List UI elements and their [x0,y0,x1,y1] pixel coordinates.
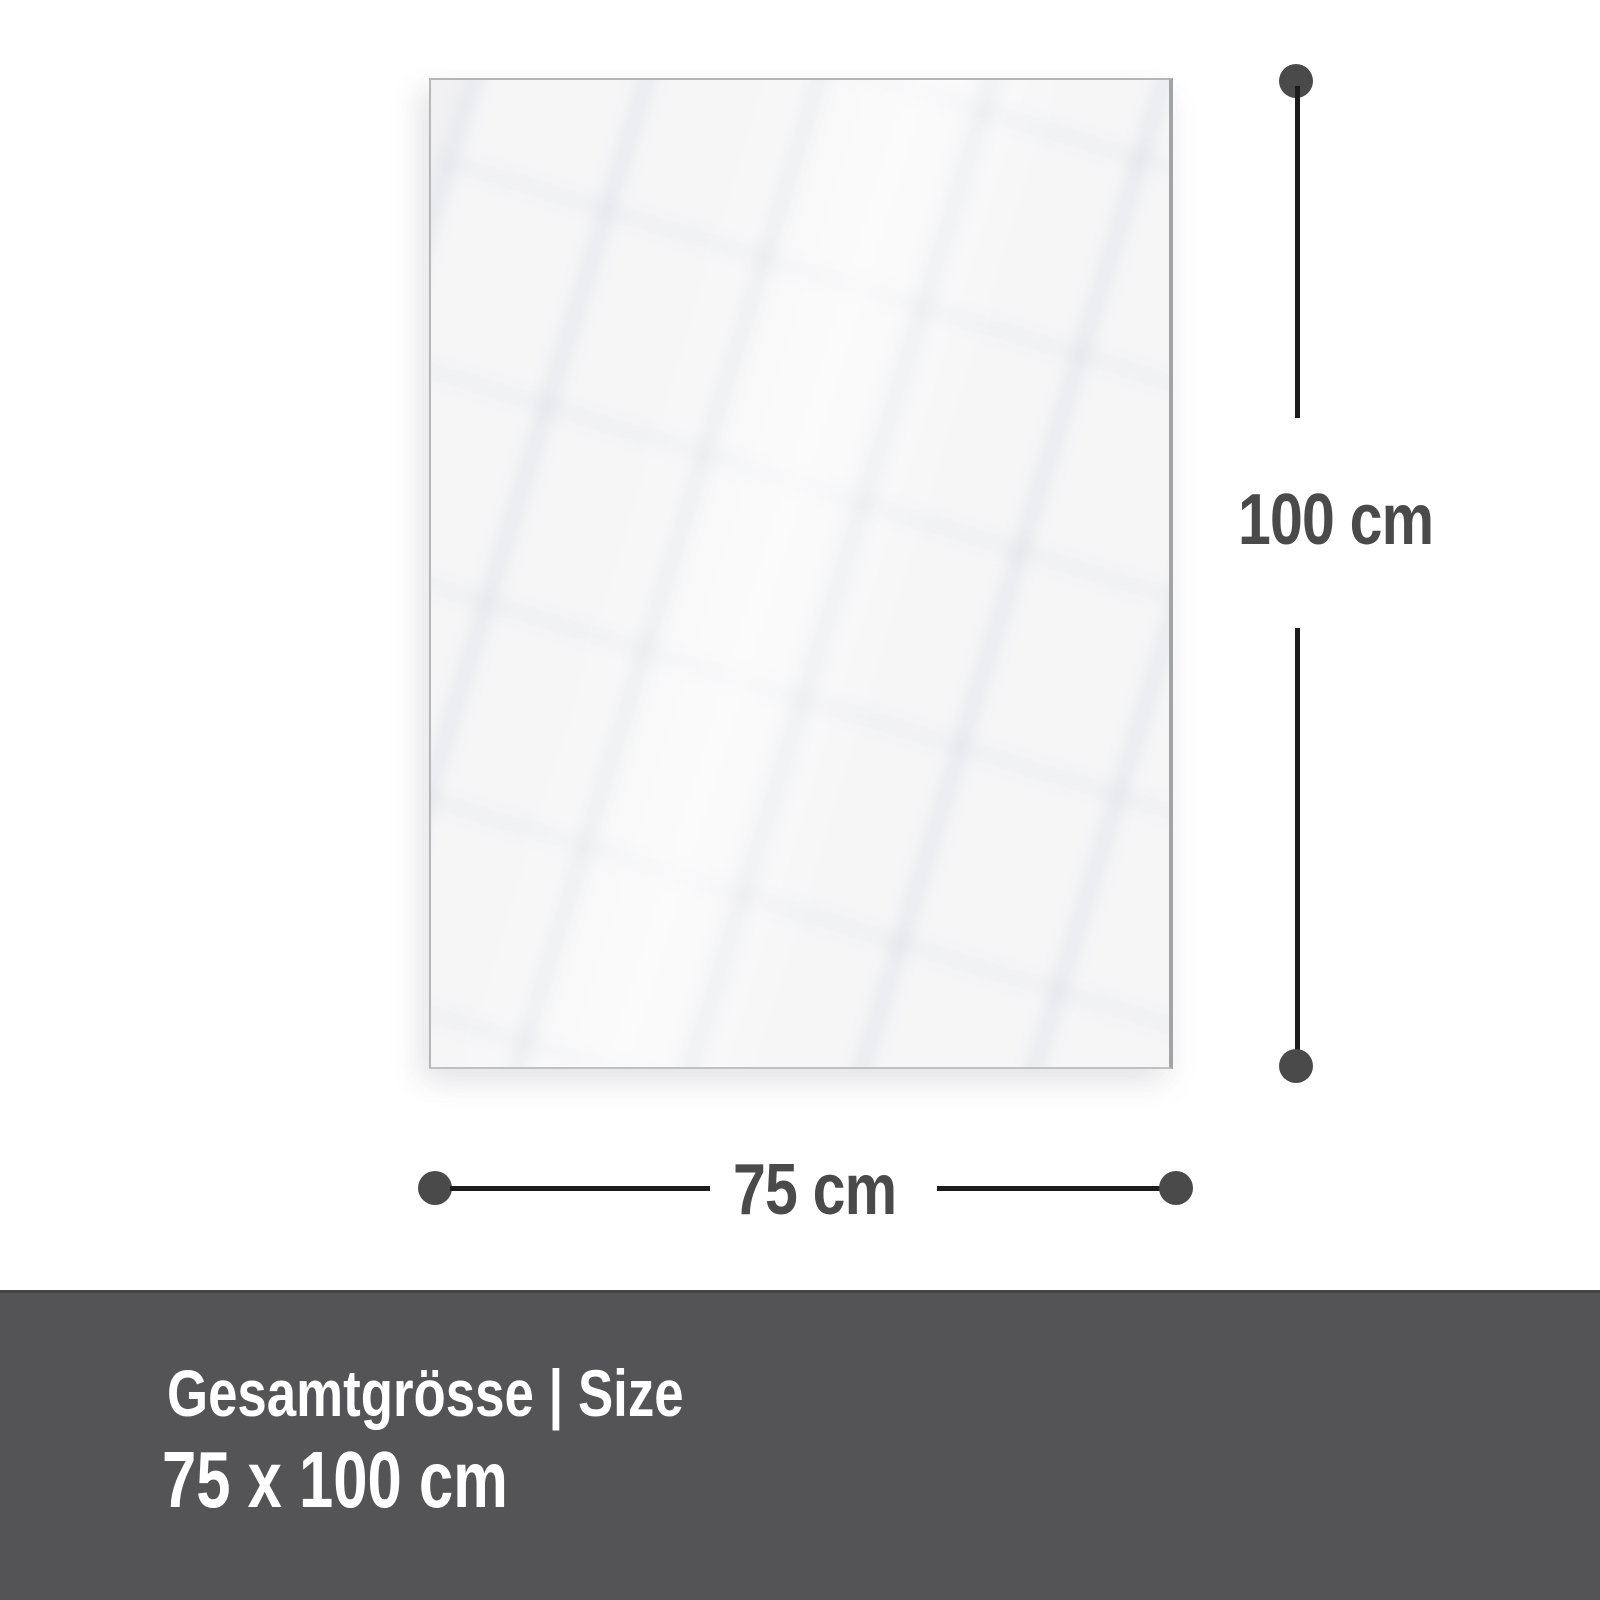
dimension-endpoint-dot-left [418,1171,452,1205]
width-dimension-label: 75 cm [733,1154,896,1226]
height-line-lower-segment [1295,628,1300,1052]
footer-title: Gesamtgrösse | Size [167,1356,684,1432]
dimension-endpoint-dot-bottom [1279,1049,1313,1083]
product-size-diagram: 100 cm 75 cm Gesamtgrösse | Size 75 x 10… [0,0,1600,1600]
glass-sheen-highlight [431,80,1169,1067]
width-line-right-segment [937,1186,1161,1191]
height-dimension-label: 100 cm [1238,484,1433,556]
size-info-footer: Gesamtgrösse | Size 75 x 100 cm [0,1290,1600,1600]
width-line-left-segment [450,1186,710,1191]
dimension-endpoint-dot-right [1159,1171,1193,1205]
glass-panel-preview [429,78,1173,1069]
footer-size-value: 75 x 100 cm [162,1434,508,1526]
height-line-upper-segment [1295,86,1300,418]
